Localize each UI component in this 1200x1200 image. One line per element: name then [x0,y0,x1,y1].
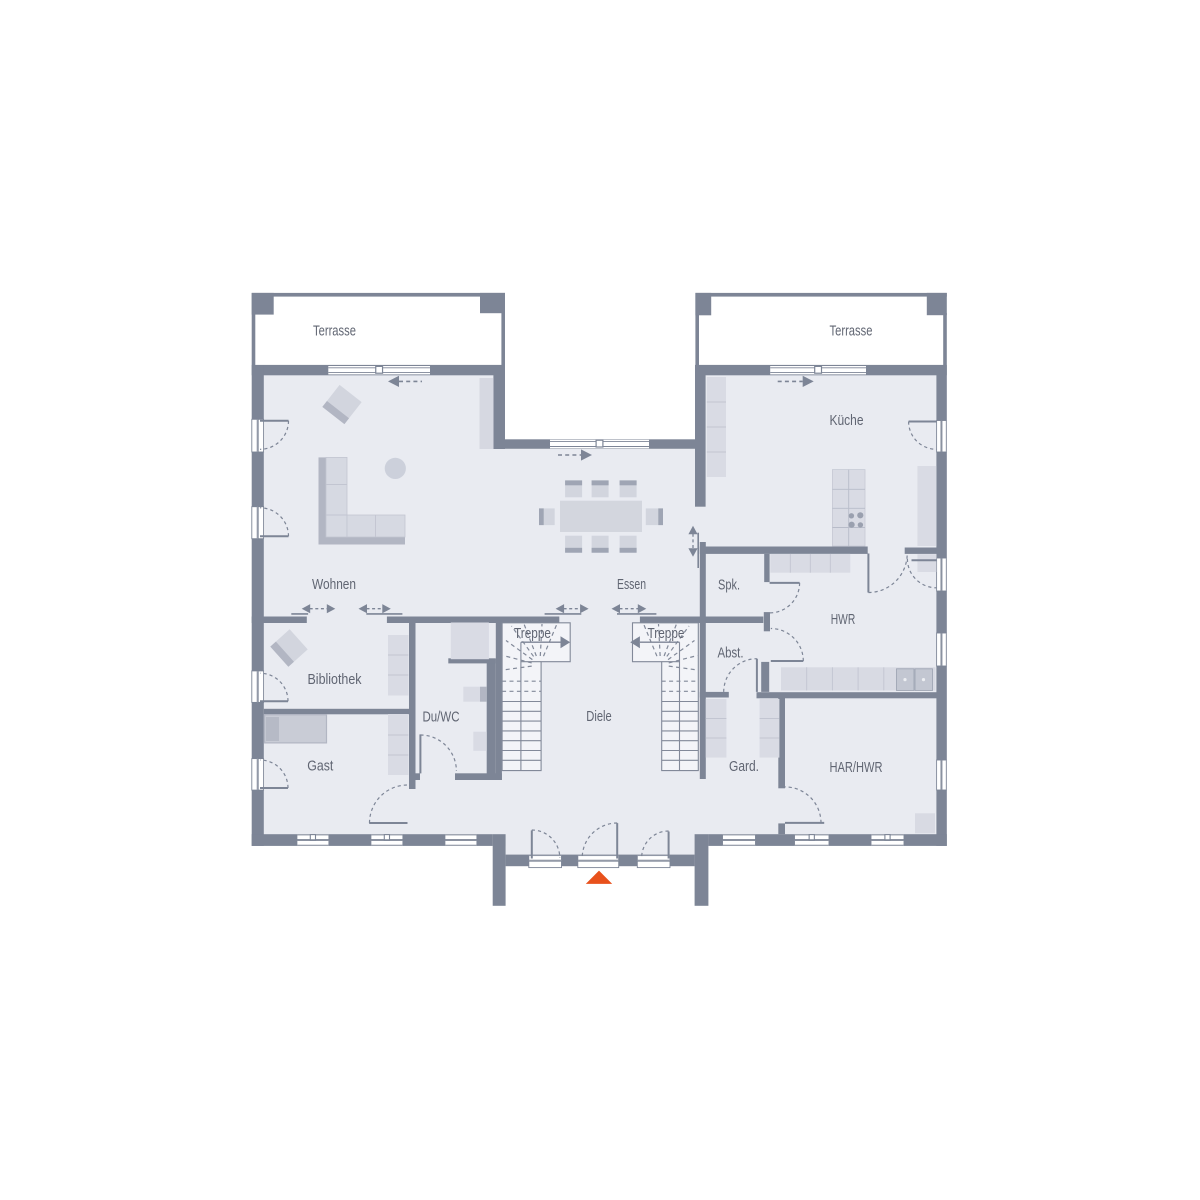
svg-text:Terrasse: Terrasse [313,323,356,339]
svg-text:Gard.: Gard. [729,759,759,775]
svg-text:HAR/HWR: HAR/HWR [830,760,883,776]
svg-text:Treppe: Treppe [648,626,685,642]
svg-text:Du/WC: Du/WC [423,709,460,725]
svg-text:Bibliothek: Bibliothek [308,672,363,688]
svg-text:Essen: Essen [617,577,646,593]
svg-text:Wohnen: Wohnen [312,577,356,593]
svg-text:Treppe: Treppe [514,626,551,642]
svg-text:Küche: Küche [830,413,864,429]
svg-text:HWR: HWR [831,612,856,628]
svg-text:Gast: Gast [307,759,333,775]
svg-text:Abst.: Abst. [718,645,744,661]
svg-text:Spk.: Spk. [718,578,740,594]
svg-text:Terrasse: Terrasse [830,323,873,339]
svg-text:Diele: Diele [586,709,612,725]
